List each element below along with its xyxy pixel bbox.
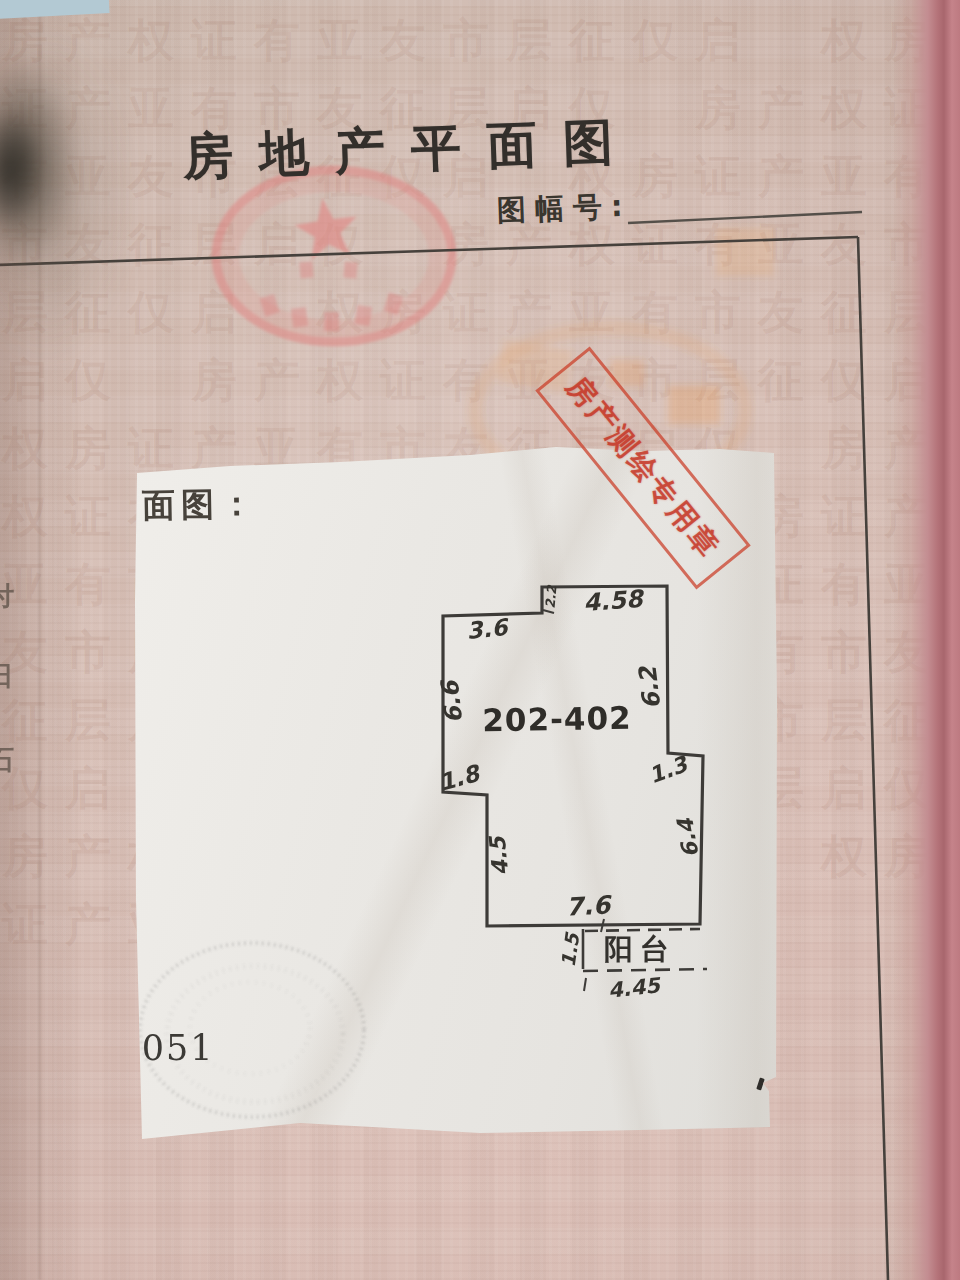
dimension-ticks (543, 610, 604, 932)
doc-number: -051 (128, 1028, 215, 1068)
dim-balcony-depth: 1.5 (557, 932, 583, 968)
dim-upper-left: 3.6 (465, 614, 508, 644)
dim-top-notch: 2.2 (543, 585, 560, 609)
stamp-star-icon (295, 198, 357, 260)
unit-number: 202-402 (482, 700, 632, 739)
sheet-number-label: 图幅号: (496, 187, 632, 232)
dim-bottom: 7.6 (565, 890, 611, 921)
dim-right-upper: 6.2 (634, 665, 667, 711)
balcony-label: 阳台 (604, 930, 676, 970)
dim-left: 6.6 (436, 679, 468, 724)
page-right-edge (893, 0, 960, 1280)
dim-top: 4.58 (582, 585, 643, 617)
dim-mid-left: 4.5 (485, 835, 513, 876)
sheet-number-underline (628, 212, 862, 223)
